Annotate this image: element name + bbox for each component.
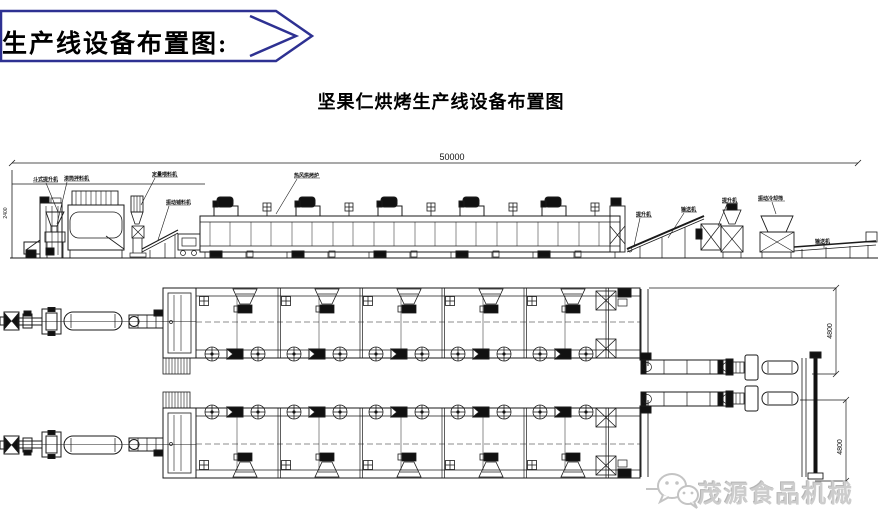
watermark-brand: 茂源食品机械 [698,474,854,509]
page: 生产线设备布置图: 坚果仁烘烤生产线设备布置图 [0,0,882,530]
elevation-view: 50000 2400 [3,152,878,258]
wechat-icon [652,468,704,514]
plan-view-2 [0,386,798,478]
layout-drawing: 50000 2400 [0,0,882,530]
dim-line2-width: 4800 [837,439,844,455]
plan-view-1: 4800 [0,285,839,380]
watermark: 茂源食品机械 [646,466,882,516]
dim-total-length: 50000 [439,152,464,162]
cross-conveyor [802,352,823,479]
dim-left-height: 2400 [3,207,9,218]
dim-line1-width: 4800 [827,323,834,339]
